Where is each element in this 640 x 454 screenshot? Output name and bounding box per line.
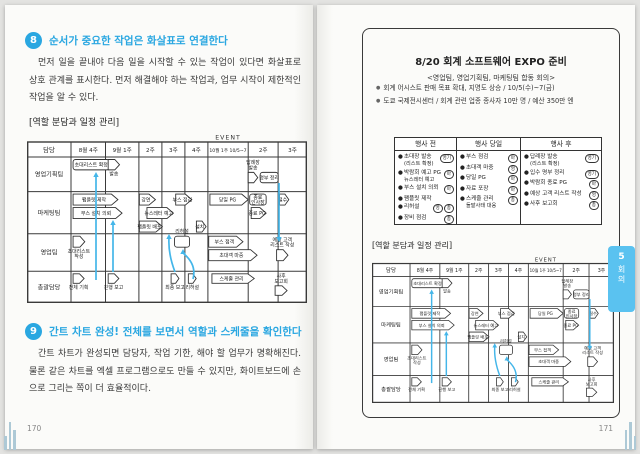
svg-text:설치: 설치	[195, 224, 204, 231]
svg-text:뉴스레터 예고: 뉴스레터 예고	[144, 210, 173, 217]
task-item: ● 사후 보고회총	[524, 201, 599, 210]
whiteboard-frame: 8/20 회계 소프트웨어 EXPO 준비 <영업팀, 영업기획팀, 마케팅팀 …	[362, 28, 620, 418]
owner-badge: 총	[444, 204, 454, 213]
section-9-heading: 9 간트 차트 완성! 전체를 보면서 역할과 스케줄을 확인한다	[25, 323, 302, 340]
owner-badge: 영기	[585, 170, 599, 179]
task-item: ● 입수 명부 정리영기	[524, 170, 599, 179]
svg-text:예상 고객리스트 작성: 예상 고객리스트 작성	[582, 345, 603, 357]
svg-text:최종 보고: 최종 보고	[165, 284, 185, 291]
svg-text:팸플릿 배포: 팸플릿 배포	[137, 224, 162, 231]
task-item: ● 리허설영총	[398, 204, 454, 213]
svg-text:당일 PG: 당일 PG	[219, 197, 237, 204]
svg-text:8월 4주: 8월 4주	[79, 146, 98, 154]
owner-badge: 마	[444, 170, 454, 179]
svg-text:2주: 2주	[475, 268, 483, 274]
svg-text:4주: 4주	[515, 268, 523, 274]
task-item: ● 부스 점검마	[460, 154, 518, 163]
section-8-title: 순서가 중요한 작업은 화살표로 연결한다	[49, 33, 228, 48]
svg-text:영업기획팀: 영업기획팀	[35, 171, 63, 179]
svg-text:팸플릿 배포: 팸플릿 배포	[467, 333, 488, 340]
task-item: ● 당일 PG마	[460, 175, 518, 184]
owner-badge: 총	[589, 201, 599, 210]
svg-text:부스 접객: 부스 접객	[534, 347, 551, 354]
svg-text:영업팀: 영업팀	[384, 355, 399, 363]
board-bullet: ●회계 어시스트 판매 목표 확대, 지명도 상승 / 10/5(수)~7(금)	[376, 82, 611, 95]
svg-text:4주: 4주	[192, 147, 201, 154]
svg-text:마케팅팀: 마케팅팀	[38, 209, 61, 217]
task-table-header: 행사 후	[521, 138, 601, 151]
svg-text:부스 점검: 부스 점검	[498, 310, 515, 317]
section-8-number-badge: 8	[25, 32, 42, 49]
svg-text:2주: 2주	[572, 268, 580, 274]
task-item: ● 부스 설치 의뢰마	[398, 185, 454, 194]
owner-badge: 영	[589, 191, 599, 200]
svg-text:3주: 3주	[598, 268, 606, 274]
owner-badge: 마	[444, 185, 454, 194]
svg-text:강연: 강연	[141, 197, 150, 204]
svg-text:뉴스레터 예고: 뉴스레터 예고	[473, 322, 498, 329]
svg-text:총괄담당: 총괄담당	[381, 385, 401, 393]
svg-text:담당: 담당	[386, 267, 396, 274]
owner-badge: 마	[508, 186, 518, 195]
svg-text:10월 1주 10/5~7: 10월 1주 10/5~7	[209, 147, 246, 154]
task-table-header: 행사 전	[395, 138, 457, 151]
svg-text:리허설: 리허설	[509, 386, 521, 393]
section-9-title: 간트 차트 완성! 전체를 보면서 역할과 스케줄을 확인한다	[49, 324, 302, 339]
section-9-body: 간트 차트가 완성되면 담당자, 작업 기한, 해야 할 업무가 명확해진다. …	[29, 346, 301, 399]
task-table-column: ● 초대장 발송(리스트 확정)영기● 박람회 예고 PG뉴스레터 예고마● 부…	[395, 151, 457, 224]
task-item: ● 박람회 종료 PG마	[524, 180, 599, 189]
owner-badge: 총	[444, 215, 454, 224]
gantt-chart-right: EVENT담당8월 4주9월 1주2주3주4주10월 1주 10/5~72주3주…	[372, 254, 614, 403]
svg-text:팸플릿 제작: 팸플릿 제작	[82, 197, 107, 204]
left-page: 8 순서가 중요한 작업은 화살표로 연결한다 먼저 일을 끝내야 다음 일을 …	[5, 5, 313, 449]
svg-text:예상 고객리스트 작성: 예상 고객리스트 작성	[270, 237, 294, 249]
svg-text:부스 접객: 부스 접객	[215, 239, 235, 246]
svg-text:전체 기획: 전체 기획	[408, 386, 425, 393]
svg-text:전체 기획: 전체 기획	[69, 284, 89, 291]
task-item: ● 장비 점검총	[398, 215, 454, 224]
task-table-column: ● 답례장 발송(리스트 확정)영기● 입수 명부 정리영기● 박람회 종료 P…	[521, 151, 601, 224]
svg-text:명부 정리: 명부 정리	[573, 291, 590, 298]
page-number-right: 171	[599, 424, 613, 433]
task-item: ● 예상 고객 리스트 작성영	[524, 191, 599, 200]
owner-badge: 영	[508, 165, 518, 174]
svg-text:영업기획팀: 영업기획팀	[379, 287, 404, 295]
svg-text:리허설: 리허설	[186, 284, 200, 291]
owner-badge: 마	[508, 154, 518, 163]
svg-text:10월 1주 10/5~7: 10월 1주 10/5~7	[530, 268, 563, 273]
svg-text:당일 PG: 당일 PG	[538, 310, 553, 316]
svg-text:초대리스트 확정: 초대리스트 확정	[75, 162, 108, 169]
task-item: ● 스케줄 관리돌발사태 대응총	[460, 196, 518, 210]
svg-text:2주: 2주	[146, 147, 155, 154]
svg-text:부스 점검: 부스 점검	[172, 197, 192, 204]
corner-decoration-left	[4, 422, 16, 450]
svg-text:마케팅팀: 마케팅팀	[381, 321, 401, 329]
bullet-icon: ●	[376, 98, 380, 104]
svg-text:종료 PG: 종료 PG	[563, 323, 578, 328]
right-chart-caption: [역할 분담과 일정 관리]	[372, 240, 452, 251]
svg-text:영업팀: 영업팀	[40, 249, 57, 257]
svg-text:발송: 발송	[109, 171, 118, 178]
svg-text:종료 PG: 종료 PG	[249, 211, 267, 217]
left-chart-caption: [역할 분담과 일정 관리]	[29, 115, 119, 128]
task-item: ● 초대장 발송(리스트 확정)영기	[398, 154, 454, 168]
task-table: 행사 전행사 당일행사 후● 초대장 발송(리스트 확정)영기● 박람회 예고 …	[394, 137, 602, 225]
svg-text:진행 보고: 진행 보고	[104, 284, 124, 291]
gantt-chart-left: EVENT담당8월 4주9월 1주2주3주4주10월 1주 10/5~72주3주…	[27, 131, 307, 303]
task-item: ● 팸플릿 제작	[398, 196, 454, 203]
svg-text:담당: 담당	[43, 145, 55, 154]
chapter-tab: 5 회의	[608, 246, 635, 312]
svg-text:3주: 3주	[169, 147, 178, 154]
task-item: ● 초대객 마중영	[460, 165, 518, 174]
svg-text:9월 1주: 9월 1주	[113, 146, 132, 154]
svg-text:3주: 3주	[288, 147, 297, 154]
task-item: ● 답례장 발송(리스트 확정)영기	[524, 154, 599, 168]
svg-text:리허설: 리허설	[500, 338, 512, 345]
svg-text:명부 정리: 명부 정리	[259, 174, 279, 181]
section-8-body: 먼저 일을 끝내야 다음 일을 시작할 수 있는 작업이 있다면 화살표로 상호…	[29, 55, 301, 108]
svg-text:3주: 3주	[495, 268, 503, 274]
task-item: ● 박람회 예고 PG뉴스레터 예고마	[398, 170, 454, 184]
page-number-left: 170	[27, 424, 41, 433]
svg-text:최종 보고: 최종 보고	[491, 386, 508, 393]
owner-badge: 마	[589, 180, 599, 189]
board-title: 8/20 회계 소프트웨어 EXPO 준비	[363, 53, 619, 68]
right-page: 8/20 회계 소프트웨어 EXPO 준비 <영업팀, 영업기획팀, 마케팅팀 …	[317, 5, 635, 449]
task-table-column: ● 부스 점검마● 초대객 마중영● 당일 PG마● 자료 포장마● 스케줄 관…	[457, 151, 521, 224]
svg-text:총괄담당: 총괄담당	[38, 283, 61, 291]
section-9-number-badge: 9	[25, 323, 42, 340]
board-bullet-text: 도쿄 국제전시센터 / 회계 관련 업종 종사자 10만 명 / 예산 350만…	[383, 97, 573, 105]
svg-text:스케줄 관리: 스케줄 관리	[538, 378, 559, 385]
board-bullet: ●도쿄 국제전시센터 / 회계 관련 업종 종사자 10만 명 / 예산 350…	[376, 95, 611, 108]
book-spread: 8 순서가 중요한 작업은 화살표로 연결한다 먼저 일을 끝내야 다음 일을 …	[0, 0, 640, 454]
svg-text:강연: 강연	[471, 310, 479, 316]
task-item: ● 자료 포장마	[460, 186, 518, 195]
board-bullet-text: 회계 어시스트 판매 목표 확대, 지명도 상승 / 10/5(수)~7(금)	[383, 84, 554, 92]
owner-badge: 영	[433, 204, 443, 213]
owner-badge: 마	[508, 175, 518, 184]
owner-badge: 영기	[440, 154, 454, 163]
bullet-icon: ●	[376, 85, 380, 91]
corner-decoration-right	[625, 422, 637, 450]
svg-text:진행 보고: 진행 보고	[438, 386, 455, 392]
svg-text:초대객 마중: 초대객 마중	[219, 252, 244, 259]
task-table-header: 행사 당일	[457, 138, 521, 151]
svg-text:초대객 마중: 초대객 마중	[538, 358, 559, 365]
owner-badge: 영기	[585, 154, 599, 163]
svg-text:스케줄 관리: 스케줄 관리	[220, 275, 244, 282]
svg-text:리허설: 리허설	[175, 228, 189, 235]
board-bullets: ●회계 어시스트 판매 목표 확대, 지명도 상승 / 10/5(수)~7(금)…	[376, 82, 611, 107]
section-8-heading: 8 순서가 중요한 작업은 화살표로 연결한다	[25, 32, 228, 49]
svg-text:초대리스트 확정: 초대리스트 확정	[413, 280, 442, 287]
svg-text:설치: 설치	[517, 333, 525, 340]
chapter-tab-label: 회의	[616, 265, 627, 285]
svg-text:EVENT: EVENT	[215, 135, 240, 142]
svg-text:EVENT: EVENT	[535, 257, 557, 263]
svg-text:발송: 발송	[443, 288, 451, 294]
svg-text:2주: 2주	[259, 147, 268, 154]
owner-badge: 총	[508, 196, 518, 205]
chapter-tab-number: 5	[618, 252, 624, 263]
svg-text:팸플릿 제작: 팸플릿 제작	[420, 310, 441, 317]
